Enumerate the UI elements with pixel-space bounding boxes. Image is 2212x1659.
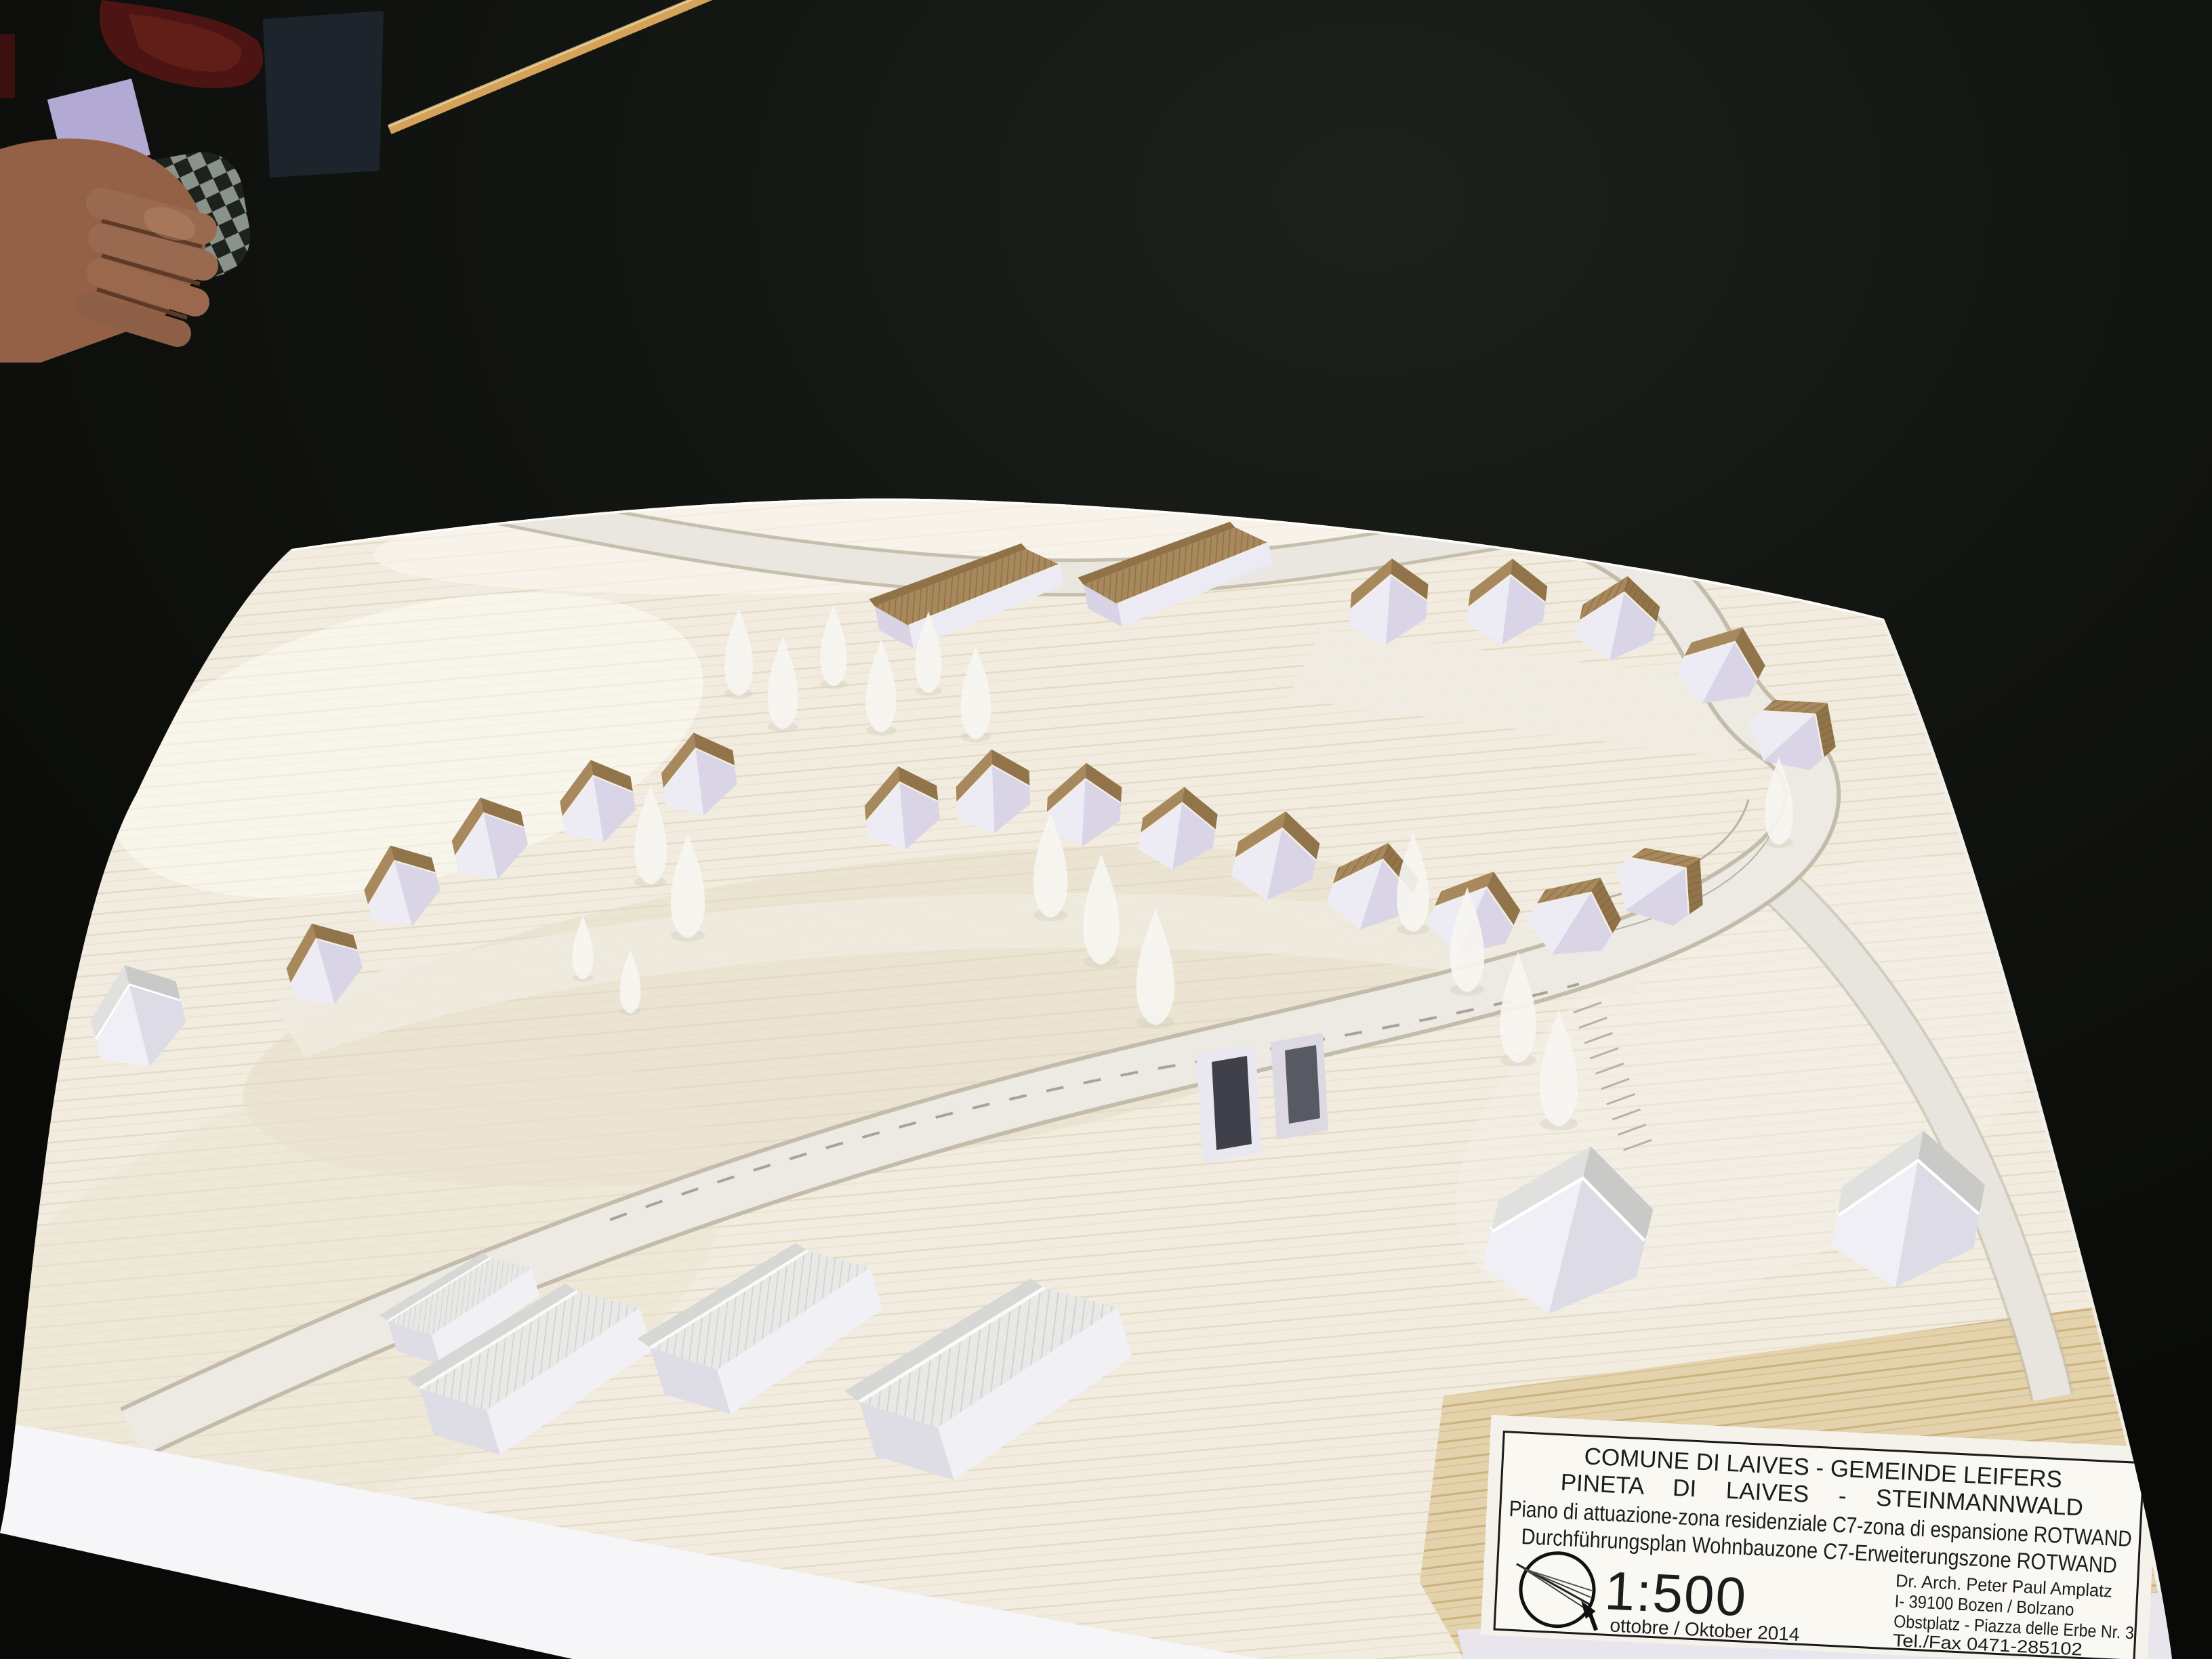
- red-sliver: [0, 34, 15, 98]
- plaque: COMUNE DI LAIVES - GEMEINDE LEIFERS PINE…: [1481, 1415, 2158, 1659]
- garage-opening: [1285, 1045, 1320, 1124]
- slate-object: [263, 11, 384, 178]
- photo-architectural-model: COMUNE DI LAIVES - GEMEINDE LEIFERS PINE…: [0, 0, 2212, 1659]
- photo-canvas: COMUNE DI LAIVES - GEMEINDE LEIFERS PINE…: [0, 0, 2212, 1659]
- garage-opening: [1212, 1056, 1252, 1150]
